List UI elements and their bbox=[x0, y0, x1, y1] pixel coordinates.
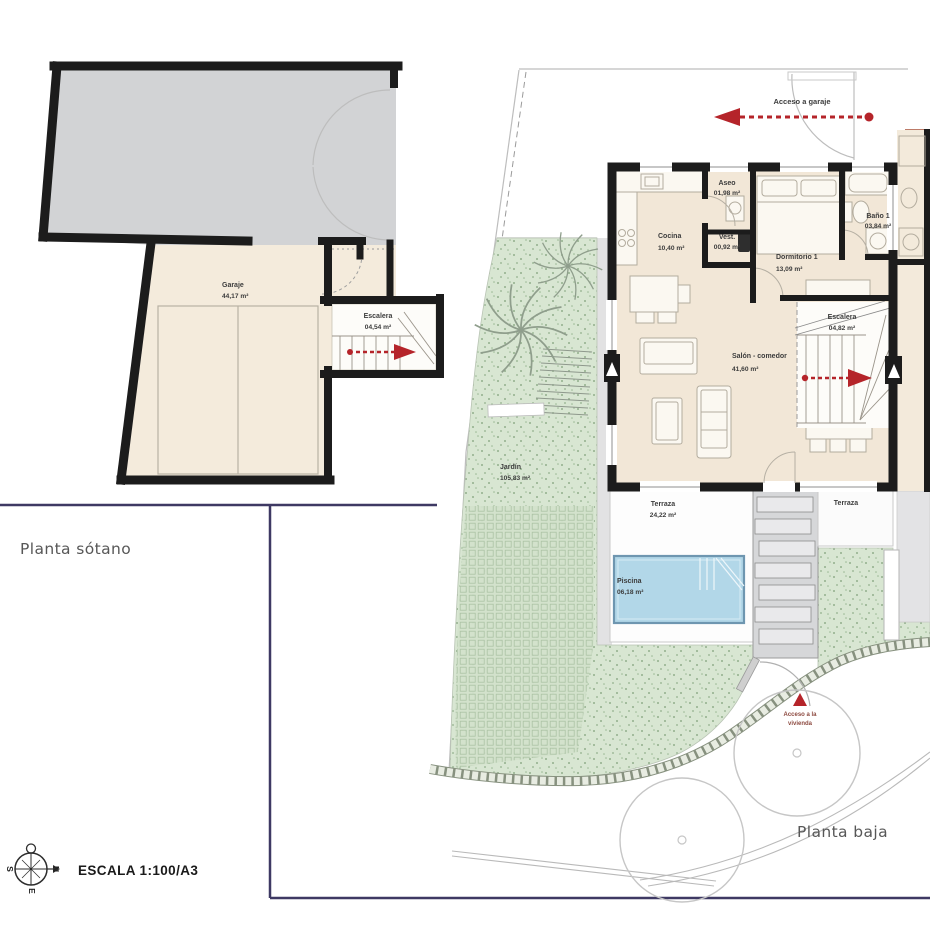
tree-icon bbox=[734, 690, 860, 816]
ground-floor-plan: Acceso a garaje bbox=[430, 69, 930, 902]
garage-access-arrow: Acceso a garaje bbox=[714, 97, 874, 126]
ground-staircase: Escalera 04,82 m² bbox=[795, 301, 893, 428]
garaje-label: Garaje bbox=[222, 282, 244, 289]
compass-icon: N S E bbox=[5, 844, 61, 894]
neighbour-unit bbox=[897, 130, 930, 491]
terraza-left-label: Terraza bbox=[651, 501, 675, 508]
terraza-right-label: Terraza bbox=[834, 500, 858, 507]
chimney-vent-left bbox=[604, 354, 620, 382]
acceso-vivienda-line2: vivienda bbox=[788, 721, 813, 727]
aseo-area: 01,98 m² bbox=[714, 190, 741, 197]
dormitorio-label: Dormitorio 1 bbox=[776, 254, 818, 261]
compass-south-label: S bbox=[5, 866, 15, 872]
planter bbox=[884, 550, 899, 640]
ground-escalera-label: Escalera bbox=[828, 314, 857, 321]
ground-plan-title: Planta baja bbox=[797, 823, 888, 841]
salon-label: Salón - comedor bbox=[732, 353, 787, 360]
vest-area: 00,92 m² bbox=[714, 244, 741, 251]
basement-escalera-label: Escalera bbox=[364, 313, 393, 320]
chimney-vent-right bbox=[885, 356, 902, 384]
dormitorio-area: 13,09 m² bbox=[776, 266, 803, 273]
garaje-area: 44,17 m² bbox=[222, 293, 249, 300]
ground-escalera-area: 04,82 m² bbox=[829, 325, 856, 332]
jardin-label: Jardín bbox=[500, 464, 521, 471]
compass-east-label: E bbox=[27, 888, 37, 894]
vest-label: Vest. bbox=[719, 234, 735, 241]
pool: Piscina 06,18 m² bbox=[614, 556, 744, 623]
bano-label: Baño 1 bbox=[866, 213, 889, 220]
basement-escalera-area: 04,54 m² bbox=[365, 324, 392, 331]
tree-icon bbox=[620, 778, 744, 902]
acceso-garaje-label: Acceso a garaje bbox=[773, 97, 830, 106]
cocina-area: 10,40 m² bbox=[658, 245, 685, 252]
floor-plan-sheet: Garaje 44,17 m² Escalera 04,54 m² Acceso… bbox=[0, 0, 930, 945]
basement-plan-title: Planta sótano bbox=[20, 540, 131, 558]
salon-area: 41,60 m² bbox=[732, 366, 759, 373]
aseo-label: Aseo bbox=[718, 180, 735, 187]
piscina-area: 06,18 m² bbox=[617, 589, 644, 596]
terraza-left-area: 24,22 m² bbox=[650, 512, 677, 519]
cocina-label: Cocina bbox=[658, 233, 681, 240]
scale-label: ESCALA 1:100/A3 bbox=[78, 863, 198, 878]
basement-plan: Garaje 44,17 m² Escalera 04,54 m² bbox=[43, 66, 440, 480]
bano-area: 03,84 m² bbox=[865, 223, 892, 230]
compass-north-label: N bbox=[51, 866, 61, 872]
acceso-vivienda-line1: Acceso a la bbox=[783, 712, 817, 718]
piscina-label: Piscina bbox=[617, 578, 642, 585]
jardin-area: 105,83 m² bbox=[500, 475, 531, 482]
plan-drawing: Garaje 44,17 m² Escalera 04,54 m² Acceso… bbox=[0, 0, 930, 945]
